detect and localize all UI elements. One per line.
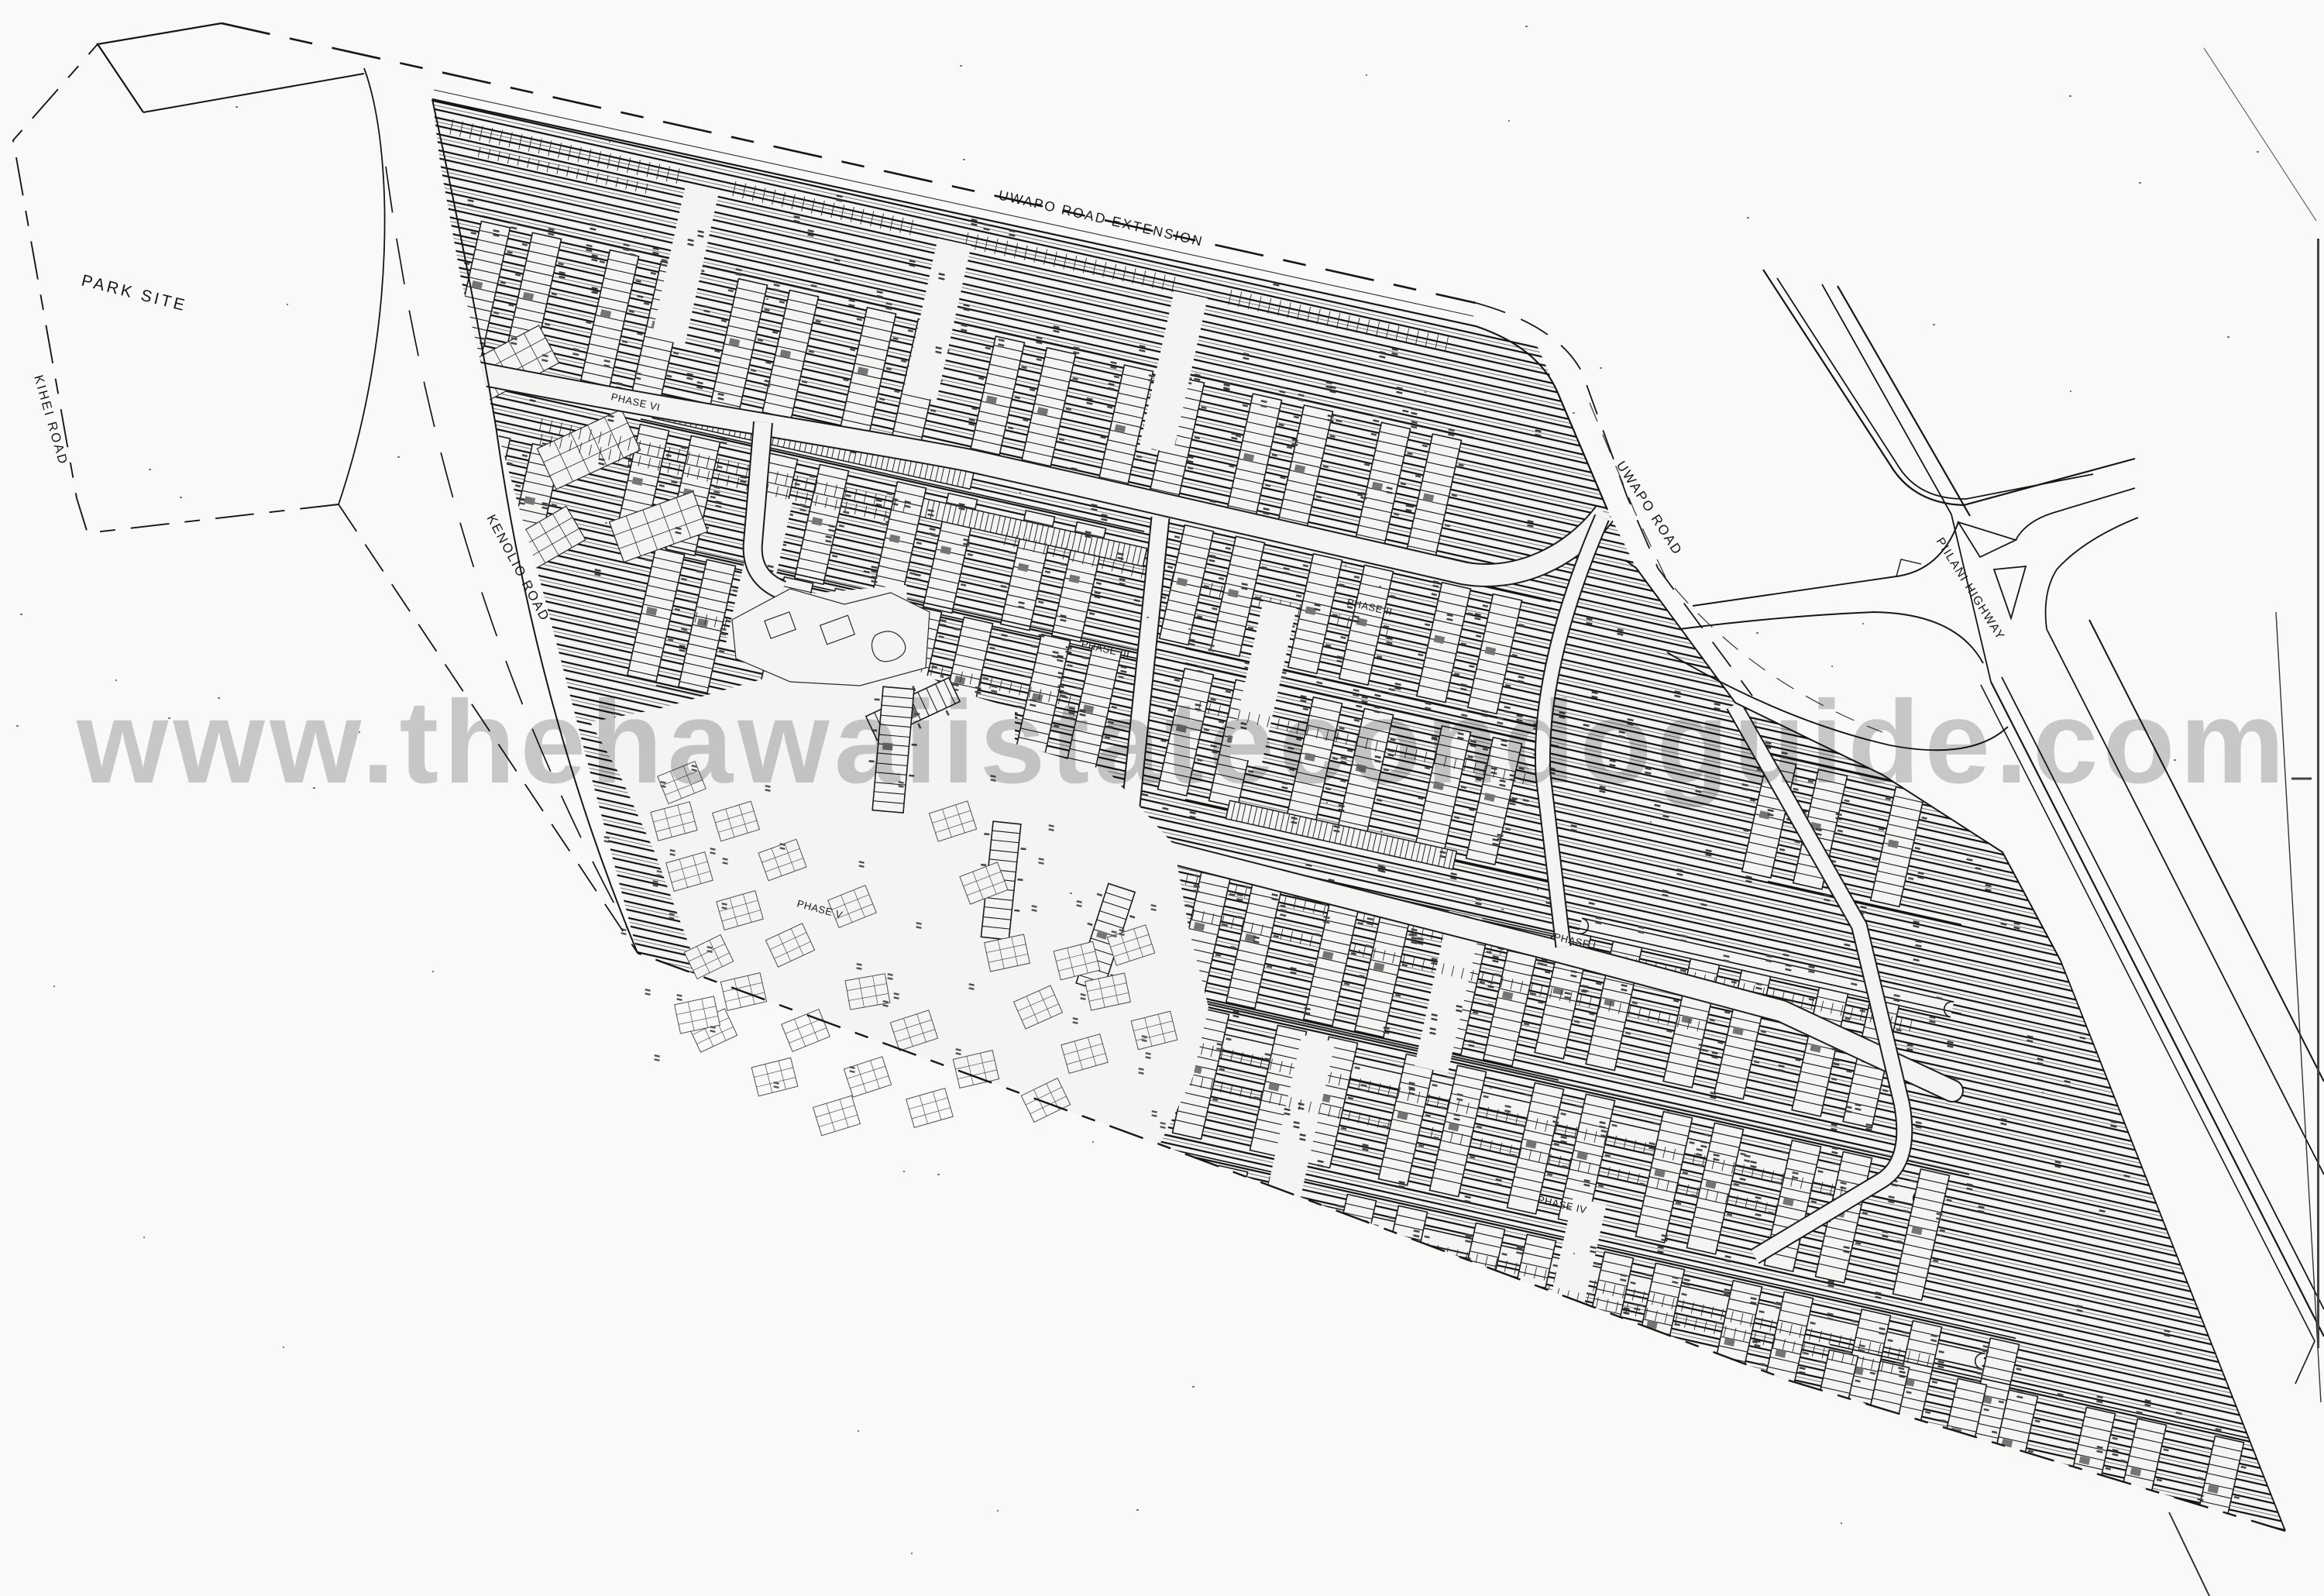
svg-text:www.thehawaiistatecondoguide.c: www.thehawaiistatecondoguide.com [76, 676, 2289, 808]
